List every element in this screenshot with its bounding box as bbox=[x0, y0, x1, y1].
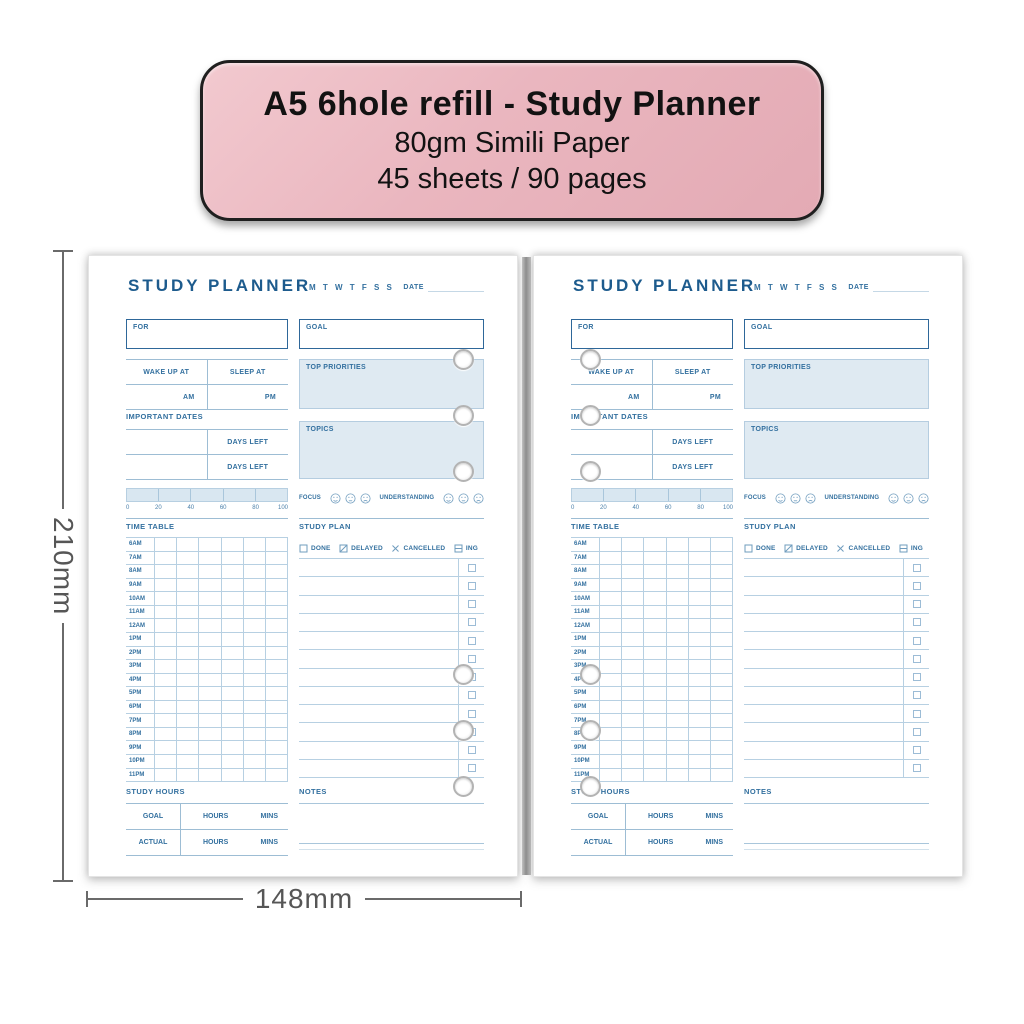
top-priorities-field[interactable]: TOP PRIORITIES bbox=[744, 359, 929, 409]
time-table-cell[interactable] bbox=[176, 538, 198, 551]
time-table-cell[interactable] bbox=[154, 728, 176, 741]
time-table-cell[interactable] bbox=[265, 633, 287, 646]
plan-checkbox-icon[interactable] bbox=[468, 582, 476, 590]
time-table-cell[interactable] bbox=[243, 741, 265, 754]
time-table-cell[interactable] bbox=[154, 687, 176, 700]
study-plan-write-line[interactable] bbox=[299, 632, 458, 649]
time-table-cell[interactable] bbox=[221, 741, 243, 754]
time-table-row[interactable]: 6PM bbox=[126, 701, 287, 715]
time-table-cell[interactable] bbox=[176, 660, 198, 673]
time-table-cell[interactable] bbox=[198, 579, 220, 592]
time-table-cell[interactable] bbox=[265, 565, 287, 578]
study-plan-row[interactable] bbox=[299, 742, 484, 760]
study-plan-row[interactable] bbox=[744, 577, 929, 595]
study-plan-row[interactable] bbox=[744, 650, 929, 668]
time-table-cell[interactable] bbox=[221, 647, 243, 660]
time-table-cell[interactable] bbox=[198, 741, 220, 754]
time-table-cell[interactable] bbox=[621, 619, 643, 632]
plan-checkbox-icon[interactable] bbox=[468, 618, 476, 626]
face-neutral-icon[interactable] bbox=[903, 493, 914, 504]
time-table-row[interactable]: 9AM bbox=[571, 579, 732, 593]
time-table-cell[interactable] bbox=[621, 647, 643, 660]
time-table-row[interactable]: 9PM bbox=[126, 741, 287, 755]
time-table-cell[interactable] bbox=[643, 728, 665, 741]
time-table-cell[interactable] bbox=[621, 701, 643, 714]
time-table-cell[interactable] bbox=[176, 755, 198, 768]
time-table-cell[interactable] bbox=[621, 755, 643, 768]
study-plan-row[interactable] bbox=[299, 760, 484, 778]
face-frown-icon[interactable] bbox=[360, 493, 371, 504]
time-table-cell[interactable] bbox=[265, 552, 287, 565]
time-table-cell[interactable] bbox=[621, 592, 643, 605]
plan-checkbox-icon[interactable] bbox=[468, 600, 476, 608]
time-table-row[interactable]: 3PM bbox=[126, 660, 287, 674]
study-plan-row[interactable] bbox=[744, 632, 929, 650]
time-table-cell[interactable] bbox=[243, 633, 265, 646]
time-table-cell[interactable] bbox=[176, 647, 198, 660]
time-table-cell[interactable] bbox=[154, 701, 176, 714]
progress-bar[interactable] bbox=[571, 488, 733, 502]
time-table-cell[interactable] bbox=[243, 714, 265, 727]
time-table-cell[interactable] bbox=[176, 633, 198, 646]
time-table-cell[interactable] bbox=[243, 701, 265, 714]
time-table-cell[interactable] bbox=[710, 592, 732, 605]
time-table-cell[interactable] bbox=[710, 538, 732, 551]
important-date-row[interactable]: DAYS LEFT bbox=[126, 430, 288, 455]
time-table-cell[interactable] bbox=[154, 755, 176, 768]
time-table-cell[interactable] bbox=[621, 769, 643, 782]
time-table-cell[interactable] bbox=[243, 660, 265, 673]
time-table-cell[interactable] bbox=[221, 714, 243, 727]
study-plan-write-line[interactable] bbox=[744, 760, 903, 777]
study-plan-row[interactable] bbox=[744, 596, 929, 614]
study-plan-row[interactable] bbox=[299, 596, 484, 614]
face-neutral-icon[interactable] bbox=[345, 493, 356, 504]
time-table-cell[interactable] bbox=[621, 552, 643, 565]
time-table-cell[interactable] bbox=[154, 538, 176, 551]
time-table-cell[interactable] bbox=[599, 714, 621, 727]
time-table-cell[interactable] bbox=[621, 714, 643, 727]
time-table-cell[interactable] bbox=[666, 552, 688, 565]
study-plan-row[interactable] bbox=[299, 705, 484, 723]
important-date-cell[interactable] bbox=[126, 455, 208, 479]
time-table-cell[interactable] bbox=[688, 633, 710, 646]
time-table-cell[interactable] bbox=[643, 538, 665, 551]
time-table-cell[interactable] bbox=[688, 579, 710, 592]
time-table-row[interactable]: 9AM bbox=[126, 579, 287, 593]
time-table-cell[interactable] bbox=[643, 633, 665, 646]
study-plan-row[interactable] bbox=[744, 559, 929, 577]
study-plan-row[interactable] bbox=[744, 705, 929, 723]
time-table-cell[interactable] bbox=[688, 755, 710, 768]
plan-checkbox-icon[interactable] bbox=[468, 710, 476, 718]
time-table-cell[interactable] bbox=[198, 647, 220, 660]
plan-checkbox-icon[interactable] bbox=[468, 691, 476, 699]
time-table-row[interactable]: 10AM bbox=[571, 592, 732, 606]
plan-checkbox-icon[interactable] bbox=[468, 637, 476, 645]
time-table-cell[interactable] bbox=[621, 687, 643, 700]
time-table-cell[interactable] bbox=[599, 701, 621, 714]
study-plan-write-line[interactable] bbox=[299, 596, 458, 613]
time-table-cell[interactable] bbox=[221, 660, 243, 673]
time-table-cell[interactable] bbox=[198, 714, 220, 727]
time-table-row[interactable]: 4PM bbox=[126, 674, 287, 688]
time-table-cell[interactable] bbox=[666, 741, 688, 754]
for-field[interactable]: FOR bbox=[571, 319, 733, 349]
plan-checkbox-icon[interactable] bbox=[913, 582, 921, 590]
time-table-cell[interactable] bbox=[666, 633, 688, 646]
time-table-cell[interactable] bbox=[599, 619, 621, 632]
time-table-cell[interactable] bbox=[710, 687, 732, 700]
time-table-cell[interactable] bbox=[599, 579, 621, 592]
plan-checkbox-icon[interactable] bbox=[913, 728, 921, 736]
time-table-cell[interactable] bbox=[221, 728, 243, 741]
face-smile-icon[interactable] bbox=[888, 493, 899, 504]
time-table-cell[interactable] bbox=[710, 660, 732, 673]
face-frown-icon[interactable] bbox=[805, 493, 816, 504]
time-table-row[interactable]: 7AM bbox=[571, 552, 732, 566]
time-table-cell[interactable] bbox=[666, 687, 688, 700]
time-table-cell[interactable] bbox=[621, 741, 643, 754]
study-plan-row[interactable] bbox=[299, 687, 484, 705]
time-table-row[interactable]: 5PM bbox=[571, 687, 732, 701]
study-plan-write-line[interactable] bbox=[744, 650, 903, 667]
study-plan-write-line[interactable] bbox=[744, 669, 903, 686]
time-table-row[interactable]: 11AM bbox=[126, 606, 287, 620]
time-table-cell[interactable] bbox=[265, 619, 287, 632]
time-table-cell[interactable] bbox=[643, 741, 665, 754]
study-hours-goal-row[interactable]: GOAL HOURS MINS bbox=[126, 804, 288, 830]
time-table-cell[interactable] bbox=[176, 592, 198, 605]
time-table-cell[interactable] bbox=[243, 769, 265, 782]
time-table-cell[interactable] bbox=[688, 769, 710, 782]
time-table-cell[interactable] bbox=[710, 633, 732, 646]
time-table-cell[interactable] bbox=[198, 552, 220, 565]
time-table-cell[interactable] bbox=[243, 579, 265, 592]
study-plan-write-line[interactable] bbox=[744, 723, 903, 740]
time-table-cell[interactable] bbox=[621, 660, 643, 673]
study-hours-table[interactable]: GOAL HOURS MINS ACTUAL HOURS MINS bbox=[571, 803, 733, 855]
time-table-row[interactable]: 10AM bbox=[126, 592, 287, 606]
time-table-cell[interactable] bbox=[599, 674, 621, 687]
time-table-cell[interactable] bbox=[198, 633, 220, 646]
time-table-cell[interactable] bbox=[688, 701, 710, 714]
goal-field[interactable]: GOAL bbox=[299, 319, 484, 349]
study-plan-write-line[interactable] bbox=[744, 596, 903, 613]
study-plan-write-line[interactable] bbox=[299, 650, 458, 667]
time-table-cell[interactable] bbox=[221, 701, 243, 714]
time-table-cell[interactable] bbox=[666, 674, 688, 687]
time-table-cell[interactable] bbox=[265, 606, 287, 619]
time-table-cell[interactable] bbox=[688, 741, 710, 754]
time-table-cell[interactable] bbox=[710, 552, 732, 565]
time-table-cell[interactable] bbox=[688, 552, 710, 565]
time-table-cell[interactable] bbox=[265, 701, 287, 714]
time-table-cell[interactable] bbox=[176, 687, 198, 700]
time-table-cell[interactable] bbox=[176, 674, 198, 687]
time-table-cell[interactable] bbox=[265, 592, 287, 605]
time-table-cell[interactable] bbox=[666, 769, 688, 782]
time-table-cell[interactable] bbox=[599, 755, 621, 768]
time-table-cell[interactable] bbox=[643, 552, 665, 565]
time-table-cell[interactable] bbox=[221, 592, 243, 605]
time-table-cell[interactable] bbox=[621, 565, 643, 578]
time-table-cell[interactable] bbox=[621, 674, 643, 687]
time-table-cell[interactable] bbox=[643, 687, 665, 700]
time-table-cell[interactable] bbox=[688, 660, 710, 673]
face-smile-icon[interactable] bbox=[775, 493, 786, 504]
time-table-row[interactable]: 7AM bbox=[126, 552, 287, 566]
time-table-cell[interactable] bbox=[599, 592, 621, 605]
time-table-row[interactable]: 8AM bbox=[126, 565, 287, 579]
time-table-cell[interactable] bbox=[643, 769, 665, 782]
time-table-cell[interactable] bbox=[198, 606, 220, 619]
time-table-row[interactable]: 6AM bbox=[571, 538, 732, 552]
time-table-cell[interactable] bbox=[176, 701, 198, 714]
time-table-cell[interactable] bbox=[643, 619, 665, 632]
study-plan-row[interactable] bbox=[744, 614, 929, 632]
time-table-cell[interactable] bbox=[710, 714, 732, 727]
time-table-cell[interactable] bbox=[710, 728, 732, 741]
time-table-row[interactable]: 1PM bbox=[571, 633, 732, 647]
topics-field[interactable]: TOPICS bbox=[744, 421, 929, 479]
time-table-cell[interactable] bbox=[154, 565, 176, 578]
notes-write-area[interactable] bbox=[299, 803, 484, 855]
plan-checkbox-icon[interactable] bbox=[913, 764, 921, 772]
time-table-cell[interactable] bbox=[154, 633, 176, 646]
study-plan-row[interactable] bbox=[744, 742, 929, 760]
plan-checkbox-icon[interactable] bbox=[913, 746, 921, 754]
time-table-cell[interactable] bbox=[643, 606, 665, 619]
important-date-row[interactable]: DAYS LEFT bbox=[126, 455, 288, 480]
time-table-cell[interactable] bbox=[243, 687, 265, 700]
time-table-cell[interactable] bbox=[688, 687, 710, 700]
time-table-cell[interactable] bbox=[599, 633, 621, 646]
time-table-cell[interactable] bbox=[643, 755, 665, 768]
study-plan-write-line[interactable] bbox=[299, 687, 458, 704]
time-table-cell[interactable] bbox=[688, 592, 710, 605]
time-table-cell[interactable] bbox=[599, 660, 621, 673]
plan-checkbox-icon[interactable] bbox=[468, 764, 476, 772]
time-table-cell[interactable] bbox=[243, 728, 265, 741]
study-plan-row[interactable] bbox=[299, 577, 484, 595]
time-table-cell[interactable] bbox=[265, 674, 287, 687]
time-table-cell[interactable] bbox=[198, 592, 220, 605]
study-plan-write-line[interactable] bbox=[744, 559, 903, 576]
time-table-cell[interactable] bbox=[221, 579, 243, 592]
important-dates-table[interactable]: DAYS LEFT DAYS LEFT bbox=[126, 429, 288, 479]
time-table-cell[interactable] bbox=[243, 674, 265, 687]
study-plan-write-line[interactable] bbox=[299, 723, 458, 740]
time-table-cell[interactable] bbox=[643, 674, 665, 687]
time-table-cell[interactable] bbox=[710, 606, 732, 619]
time-table-row[interactable]: 11AM bbox=[571, 606, 732, 620]
for-field[interactable]: FOR bbox=[126, 319, 288, 349]
time-table-cell[interactable] bbox=[176, 741, 198, 754]
study-hours-goal-row[interactable]: GOAL HOURS MINS bbox=[571, 804, 733, 830]
time-table-cell[interactable] bbox=[710, 579, 732, 592]
time-table-cell[interactable] bbox=[599, 728, 621, 741]
study-plan-row[interactable] bbox=[299, 559, 484, 577]
plan-checkbox-icon[interactable] bbox=[913, 673, 921, 681]
study-plan-write-line[interactable] bbox=[744, 577, 903, 594]
time-table-cell[interactable] bbox=[265, 769, 287, 782]
time-table-cell[interactable] bbox=[243, 647, 265, 660]
plan-checkbox-icon[interactable] bbox=[913, 655, 921, 663]
time-table-row[interactable]: 6AM bbox=[126, 538, 287, 552]
time-table-cell[interactable] bbox=[221, 769, 243, 782]
time-table-cell[interactable] bbox=[265, 687, 287, 700]
time-table-cell[interactable] bbox=[688, 647, 710, 660]
study-plan-write-line[interactable] bbox=[744, 742, 903, 759]
study-plan-write-line[interactable] bbox=[744, 687, 903, 704]
time-table-cell[interactable] bbox=[198, 701, 220, 714]
study-plan-write-line[interactable] bbox=[299, 559, 458, 576]
time-table-grid[interactable]: 6AM7AM8AM9AM10AM11AM12AM1PM2PM3PM4PM5PM6… bbox=[126, 537, 288, 782]
time-table-cell[interactable] bbox=[154, 579, 176, 592]
time-table-cell[interactable] bbox=[221, 565, 243, 578]
time-table-cell[interactable] bbox=[643, 647, 665, 660]
study-plan-write-line[interactable] bbox=[299, 614, 458, 631]
time-table-cell[interactable] bbox=[176, 565, 198, 578]
notes-write-area[interactable] bbox=[744, 803, 929, 855]
time-table-cell[interactable] bbox=[265, 741, 287, 754]
plan-checkbox-icon[interactable] bbox=[468, 746, 476, 754]
study-plan-row[interactable] bbox=[744, 723, 929, 741]
time-table-cell[interactable] bbox=[666, 755, 688, 768]
time-table-row[interactable]: 10PM bbox=[126, 755, 287, 769]
face-neutral-icon[interactable] bbox=[790, 493, 801, 504]
goal-field[interactable]: GOAL bbox=[744, 319, 929, 349]
time-table-cell[interactable] bbox=[710, 701, 732, 714]
study-plan-write-line[interactable] bbox=[744, 632, 903, 649]
study-plan-row[interactable] bbox=[744, 687, 929, 705]
time-table-cell[interactable] bbox=[621, 633, 643, 646]
study-plan-write-line[interactable] bbox=[744, 614, 903, 631]
time-table-cell[interactable] bbox=[710, 619, 732, 632]
wake-sleep-table[interactable]: WAKE UP AT SLEEP AT AM PM bbox=[126, 359, 288, 409]
time-table-cell[interactable] bbox=[198, 619, 220, 632]
time-table-cell[interactable] bbox=[198, 687, 220, 700]
time-table-cell[interactable] bbox=[198, 769, 220, 782]
time-table-cell[interactable] bbox=[243, 755, 265, 768]
study-plan-row[interactable] bbox=[299, 632, 484, 650]
time-table-cell[interactable] bbox=[176, 714, 198, 727]
time-table-cell[interactable] bbox=[643, 592, 665, 605]
study-hours-actual-row[interactable]: ACTUAL HOURS MINS bbox=[126, 830, 288, 856]
time-table-row[interactable]: 11PM bbox=[126, 769, 287, 783]
time-table-row[interactable]: 6PM bbox=[571, 701, 732, 715]
time-table-row[interactable]: 2PM bbox=[571, 647, 732, 661]
time-table-cell[interactable] bbox=[176, 579, 198, 592]
time-table-row[interactable]: 5PM bbox=[126, 687, 287, 701]
time-table-cell[interactable] bbox=[599, 687, 621, 700]
time-table-cell[interactable] bbox=[243, 592, 265, 605]
progress-scale[interactable]: 020406080100 bbox=[126, 488, 288, 512]
time-table-cell[interactable] bbox=[710, 674, 732, 687]
progress-scale[interactable]: 020406080100 bbox=[571, 488, 733, 512]
study-plan-row[interactable] bbox=[744, 669, 929, 687]
face-smile-icon[interactable] bbox=[443, 493, 454, 504]
time-table-cell[interactable] bbox=[154, 647, 176, 660]
time-table-cell[interactable] bbox=[265, 714, 287, 727]
time-table-cell[interactable] bbox=[710, 565, 732, 578]
time-table-cell[interactable] bbox=[688, 606, 710, 619]
time-table-row[interactable]: 1PM bbox=[126, 633, 287, 647]
time-table-cell[interactable] bbox=[154, 606, 176, 619]
time-table-row[interactable]: 8AM bbox=[571, 565, 732, 579]
plan-checkbox-icon[interactable] bbox=[468, 564, 476, 572]
time-table-cell[interactable] bbox=[221, 606, 243, 619]
time-table-cell[interactable] bbox=[265, 579, 287, 592]
time-table-cell[interactable] bbox=[176, 769, 198, 782]
face-frown-icon[interactable] bbox=[918, 493, 929, 504]
time-table-cell[interactable] bbox=[154, 592, 176, 605]
time-table-cell[interactable] bbox=[599, 565, 621, 578]
time-table-cell[interactable] bbox=[221, 538, 243, 551]
time-table-cell[interactable] bbox=[221, 633, 243, 646]
time-table-cell[interactable] bbox=[198, 538, 220, 551]
time-table-cell[interactable] bbox=[643, 579, 665, 592]
time-table-cell[interactable] bbox=[265, 660, 287, 673]
time-table-cell[interactable] bbox=[198, 660, 220, 673]
face-neutral-icon[interactable] bbox=[458, 493, 469, 504]
time-table-cell[interactable] bbox=[643, 714, 665, 727]
time-table-cell[interactable] bbox=[621, 606, 643, 619]
study-plan-write-line[interactable] bbox=[299, 577, 458, 594]
time-table-cell[interactable] bbox=[688, 728, 710, 741]
time-table-row[interactable]: 10PM bbox=[571, 755, 732, 769]
time-table-cell[interactable] bbox=[666, 565, 688, 578]
time-table-cell[interactable] bbox=[243, 565, 265, 578]
time-table-cell[interactable] bbox=[221, 755, 243, 768]
time-table-cell[interactable] bbox=[265, 538, 287, 551]
time-table-cell[interactable] bbox=[265, 728, 287, 741]
time-table-cell[interactable] bbox=[666, 714, 688, 727]
plan-checkbox-icon[interactable] bbox=[913, 618, 921, 626]
time-table-cell[interactable] bbox=[688, 674, 710, 687]
time-table-row[interactable]: 9PM bbox=[571, 741, 732, 755]
time-table-cell[interactable] bbox=[221, 674, 243, 687]
time-table-cell[interactable] bbox=[621, 538, 643, 551]
progress-bar[interactable] bbox=[126, 488, 288, 502]
time-table-row[interactable]: 12AM bbox=[571, 619, 732, 633]
time-table-cell[interactable] bbox=[688, 565, 710, 578]
time-table-cell[interactable] bbox=[221, 552, 243, 565]
time-table-cell[interactable] bbox=[198, 674, 220, 687]
time-table-cell[interactable] bbox=[154, 674, 176, 687]
time-table-grid[interactable]: 6AM7AM8AM9AM10AM11AM12AM1PM2PM3PM4PM5PM6… bbox=[571, 537, 733, 782]
time-table-cell[interactable] bbox=[221, 687, 243, 700]
time-table-cell[interactable] bbox=[154, 714, 176, 727]
time-table-cell[interactable] bbox=[710, 741, 732, 754]
time-table-cell[interactable] bbox=[688, 538, 710, 551]
plan-checkbox-icon[interactable] bbox=[913, 564, 921, 572]
time-table-cell[interactable] bbox=[265, 647, 287, 660]
plan-checkbox-icon[interactable] bbox=[913, 600, 921, 608]
time-table-cell[interactable] bbox=[599, 769, 621, 782]
study-hours-table[interactable]: GOAL HOURS MINS ACTUAL HOURS MINS bbox=[126, 803, 288, 855]
time-table-cell[interactable] bbox=[198, 565, 220, 578]
time-table-cell[interactable] bbox=[243, 538, 265, 551]
time-table-cell[interactable] bbox=[176, 619, 198, 632]
important-date-cell[interactable] bbox=[126, 430, 208, 454]
time-table-cell[interactable] bbox=[688, 714, 710, 727]
study-plan-write-line[interactable] bbox=[299, 760, 458, 777]
time-table-cell[interactable] bbox=[666, 728, 688, 741]
time-table-cell[interactable] bbox=[265, 755, 287, 768]
time-table-cell[interactable] bbox=[243, 619, 265, 632]
